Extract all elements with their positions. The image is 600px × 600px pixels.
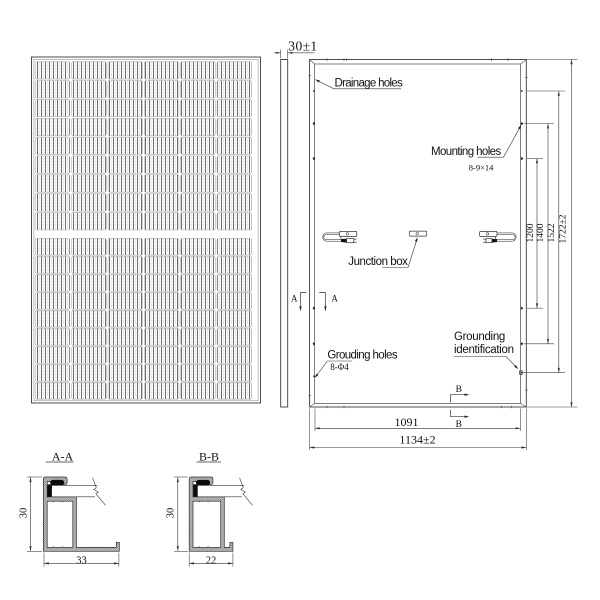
svg-text:30: 30 [166, 508, 177, 519]
svg-text:identification: identification [454, 344, 514, 356]
svg-text:1091: 1091 [395, 415, 419, 429]
svg-text:30: 30 [19, 508, 30, 519]
svg-text:B: B [456, 385, 462, 395]
svg-text:30±1: 30±1 [288, 38, 317, 53]
svg-text:Mounting holes: Mounting holes [431, 146, 501, 158]
svg-text:33: 33 [76, 555, 87, 566]
svg-text:Junction box: Junction box [348, 256, 408, 268]
svg-text:Grounding: Grounding [454, 331, 505, 343]
svg-text:B-B: B-B [199, 450, 219, 464]
svg-text:8-9×14: 8-9×14 [469, 162, 494, 172]
svg-text:8-Φ4: 8-Φ4 [330, 362, 349, 372]
svg-text:Grouding holes: Grouding holes [327, 349, 397, 361]
svg-text:Drainage holes: Drainage holes [335, 78, 404, 90]
svg-text:1400: 1400 [536, 223, 546, 242]
svg-text:1522: 1522 [547, 223, 557, 242]
svg-text:1134±2: 1134±2 [399, 433, 435, 447]
svg-text:A-A: A-A [52, 450, 74, 464]
svg-text:A: A [291, 294, 298, 304]
svg-text:A: A [331, 294, 338, 304]
svg-text:1722±2: 1722±2 [558, 214, 568, 243]
svg-text:22: 22 [206, 555, 217, 566]
svg-text:1200: 1200 [526, 223, 536, 242]
